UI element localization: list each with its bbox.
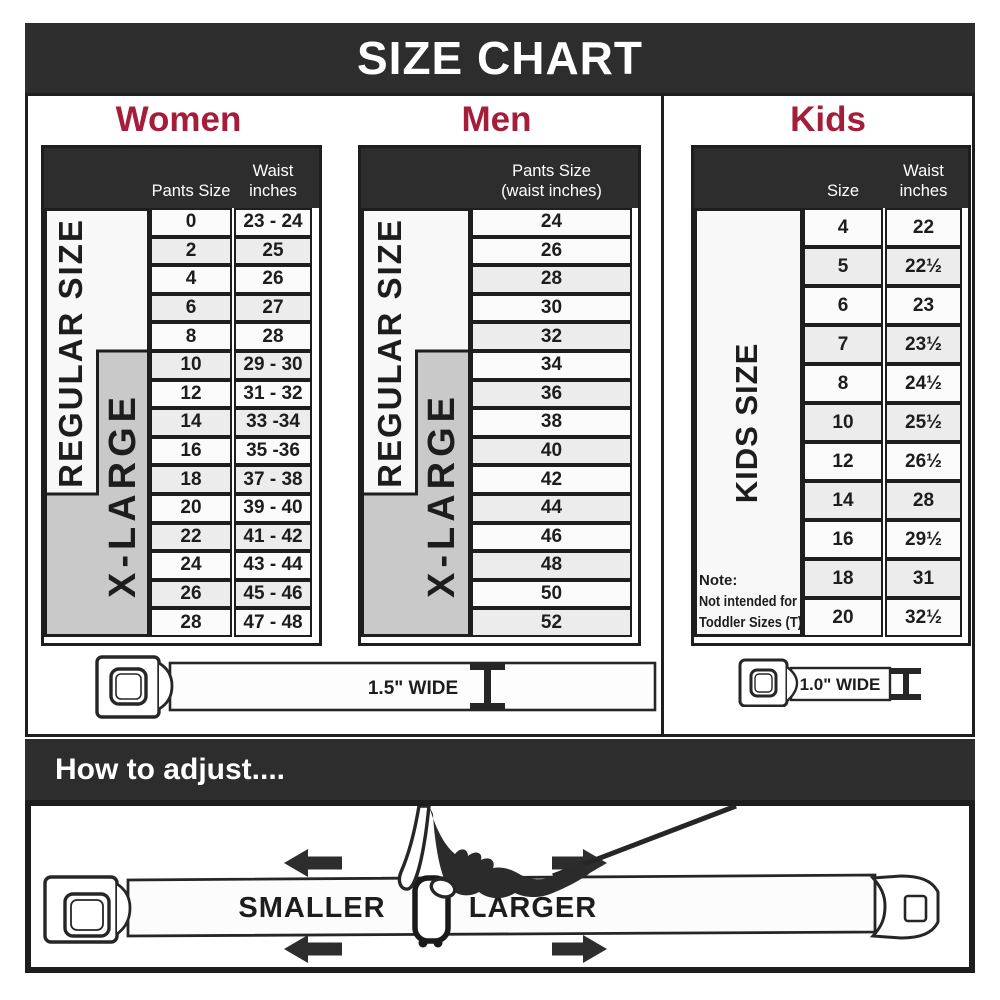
arrow-right-icon [552, 935, 607, 963]
waist-inches-cell: 25 [234, 237, 312, 266]
women-section-title: Women [41, 100, 316, 140]
size-tables-frame: Women Men Kids Pants Size Waist inches R… [25, 93, 975, 737]
waist-inches-cell: 35 -36 [234, 437, 312, 466]
pants-size-cell: 26 [150, 580, 232, 609]
table-row: 22 41 - 42 [150, 523, 313, 552]
how-to-adjust-bar: How to adjust.... [25, 739, 975, 800]
table-row: 8 24½ [803, 364, 962, 403]
pants-size-cell: 12 [150, 380, 232, 409]
kids-size-label: KIDS SIZE [729, 343, 764, 504]
waist-inches-cell: 39 - 40 [234, 494, 312, 523]
men-section-title: Men [358, 100, 635, 140]
header-spacer [694, 148, 803, 208]
men-table-rows: 24 26 28 30 32 34 36 38 [471, 208, 632, 637]
pants-size-cell: 20 [150, 494, 232, 523]
kids-waist-header: Waist inches [885, 148, 962, 208]
table-row: 28 [471, 265, 632, 294]
table-row: 10 29 - 30 [150, 351, 313, 380]
table-row: 16 35 -36 [150, 437, 313, 466]
pants-size-cell: 28 [471, 265, 632, 294]
kids-size-table: Size Waist inches KIDS SIZE Note: Not in… [691, 145, 971, 646]
men-xlarge-label: X-LARGE [421, 392, 463, 598]
pants-size-cell: 40 [471, 437, 632, 466]
pants-size-cell: 0 [150, 208, 232, 237]
table-row: 6 23 [803, 286, 962, 325]
kids-belt-illustration: 1.0" WIDE [735, 655, 930, 707]
table-row: 48 [471, 551, 632, 580]
pants-size-cell: 24 [471, 208, 632, 237]
table-row: 46 [471, 523, 632, 552]
table-row: 18 37 - 38 [150, 465, 313, 494]
table-row: 20 32½ [803, 598, 962, 637]
slider-foot [434, 939, 443, 948]
waist-inches-cell: 29 - 30 [234, 351, 312, 380]
waist-inches-cell: 27 [234, 294, 312, 323]
pants-size-cell: 42 [471, 465, 632, 494]
women-size-table: Pants Size Waist inches REGULAR SIZE X-L… [41, 145, 322, 646]
men-size-band-graphic: REGULAR SIZE X-LARGE [361, 208, 471, 637]
men-size-table: Pants Size (waist inches) REGULAR SIZE X… [358, 145, 641, 646]
pants-size-cell: 34 [471, 351, 632, 380]
pants-size-cell: 46 [471, 523, 632, 552]
pants-size-cell: 22 [150, 523, 232, 552]
kids-note-line3: Toddler Sizes (T) [699, 614, 802, 631]
waist-inches-cell: 22½ [885, 247, 962, 286]
pants-size-cell: 4 [150, 265, 232, 294]
size-cell: 18 [803, 559, 883, 598]
size-chart-page: SIZE CHART Women Men Kids Pants Size Wai… [0, 0, 1000, 1000]
pants-size-cell: 36 [471, 380, 632, 409]
table-row: 7 23½ [803, 325, 962, 364]
table-row: 12 31 - 32 [150, 380, 313, 409]
table-row: 24 [471, 208, 632, 237]
kids-note-line2: Not intended for [699, 593, 797, 610]
pants-size-cell: 44 [471, 494, 632, 523]
pants-size-cell: 50 [471, 580, 632, 609]
men-table-header: Pants Size (waist inches) [361, 148, 638, 208]
pants-size-cell: 16 [150, 437, 232, 466]
women-pants-size-header: Pants Size [150, 148, 232, 208]
women-size-band-graphic: REGULAR SIZE X-LARGE [44, 208, 150, 637]
table-row: 40 [471, 437, 632, 466]
pants-size-cell: 6 [150, 294, 232, 323]
kids-size-band-graphic: KIDS SIZE Note: Not intended for Toddler… [694, 208, 803, 637]
arrow-left-icon [284, 935, 342, 963]
page-title: SIZE CHART [357, 31, 643, 85]
kids-size-header: Size [803, 148, 883, 208]
waist-inches-cell: 31 - 32 [234, 380, 312, 409]
table-row: 14 33 -34 [150, 408, 313, 437]
table-row: 32 [471, 322, 632, 351]
size-cell: 10 [803, 403, 883, 442]
table-row: 2 25 [150, 237, 313, 266]
women-table-rows: 0 23 - 24 2 25 4 26 6 27 8 28 [150, 208, 313, 637]
table-row: 36 [471, 380, 632, 409]
table-row: 52 [471, 608, 632, 637]
kids-table-header: Size Waist inches [694, 148, 968, 208]
table-row: 16 29½ [803, 520, 962, 559]
waist-inches-cell: 24½ [885, 364, 962, 403]
pants-size-cell: 18 [150, 465, 232, 494]
title-banner: SIZE CHART [25, 23, 975, 93]
table-row: 38 [471, 408, 632, 437]
waist-inches-cell: 41 - 42 [234, 523, 312, 552]
pants-size-cell: 26 [471, 237, 632, 266]
waist-inches-cell: 26 [234, 265, 312, 294]
women-waist-header: Waist inches [234, 148, 312, 208]
waist-inches-cell: 47 - 48 [234, 608, 312, 637]
pants-size-cell: 14 [150, 408, 232, 437]
waist-inches-cell: 23 - 24 [234, 208, 312, 237]
table-row: 42 [471, 465, 632, 494]
pants-size-cell: 28 [150, 608, 232, 637]
pants-size-cell: 48 [471, 551, 632, 580]
size-cell: 7 [803, 325, 883, 364]
size-cell: 4 [803, 208, 883, 247]
table-row: 4 22 [803, 208, 962, 247]
pants-size-cell: 10 [150, 351, 232, 380]
smaller-label: SMALLER [238, 892, 385, 924]
pants-size-cell: 24 [150, 551, 232, 580]
women-regular-size-label: REGULAR SIZE [52, 218, 89, 488]
kids-note-line1: Note: [699, 572, 737, 589]
arrow-left-icon [284, 849, 342, 877]
women-table-header: Pants Size Waist inches [44, 148, 319, 208]
table-row: 5 22½ [803, 247, 962, 286]
width-marker-icon [891, 668, 921, 700]
table-row: 34 [471, 351, 632, 380]
kids-belt-width-label: 1.0" WIDE [800, 675, 881, 694]
waist-inches-cell: 33 -34 [234, 408, 312, 437]
table-row: 26 [471, 237, 632, 266]
table-row: 8 28 [150, 322, 313, 351]
size-cell: 14 [803, 481, 883, 520]
adjust-illustration: SMALLER LARGER [31, 806, 969, 967]
waist-inches-cell: 23½ [885, 325, 962, 364]
women-xlarge-label: X-LARGE [102, 392, 144, 598]
men-pants-size-header: Pants Size (waist inches) [471, 148, 632, 208]
pants-size-cell: 32 [471, 322, 632, 351]
size-cell: 16 [803, 520, 883, 559]
kids-section-divider [661, 93, 664, 737]
table-row: 28 47 - 48 [150, 608, 313, 637]
table-row: 18 31 [803, 559, 962, 598]
waist-inches-cell: 31 [885, 559, 962, 598]
table-row: 12 26½ [803, 442, 962, 481]
waist-inches-cell: 32½ [885, 598, 962, 637]
table-row: 50 [471, 580, 632, 609]
pants-size-cell: 30 [471, 294, 632, 323]
table-row: 30 [471, 294, 632, 323]
waist-inches-cell: 29½ [885, 520, 962, 559]
header-spacer [44, 148, 150, 208]
table-row: 6 27 [150, 294, 313, 323]
size-cell: 12 [803, 442, 883, 481]
waist-inches-cell: 37 - 38 [234, 465, 312, 494]
waist-inches-cell: 28 [234, 322, 312, 351]
pants-size-cell: 2 [150, 237, 232, 266]
waist-inches-cell: 22 [885, 208, 962, 247]
pants-size-cell: 8 [150, 322, 232, 351]
how-to-adjust-title: How to adjust.... [25, 753, 285, 787]
size-cell: 6 [803, 286, 883, 325]
waist-inches-cell: 23 [885, 286, 962, 325]
men-regular-size-label: REGULAR SIZE [371, 218, 408, 488]
table-row: 26 45 - 46 [150, 580, 313, 609]
adjust-illustration-panel: SMALLER LARGER [25, 800, 975, 973]
size-cell: 20 [803, 598, 883, 637]
waist-inches-cell: 25½ [885, 403, 962, 442]
table-row: 0 23 - 24 [150, 208, 313, 237]
table-row: 14 28 [803, 481, 962, 520]
pants-size-cell: 38 [471, 408, 632, 437]
belt-tip-slot [905, 896, 926, 921]
adult-belt-width-label: 1.5" WIDE [368, 678, 458, 699]
adult-belt-illustration: 1.5" WIDE [80, 650, 660, 722]
pants-size-cell: 52 [471, 608, 632, 637]
table-row: 10 25½ [803, 403, 962, 442]
table-row: 24 43 - 44 [150, 551, 313, 580]
waist-inches-cell: 26½ [885, 442, 962, 481]
header-spacer [361, 148, 471, 208]
slider-foot [419, 939, 428, 948]
kids-section-title: Kids [691, 100, 965, 140]
waist-inches-cell: 43 - 44 [234, 551, 312, 580]
table-row: 44 [471, 494, 632, 523]
waist-inches-cell: 28 [885, 481, 962, 520]
waist-inches-cell: 45 - 46 [234, 580, 312, 609]
size-cell: 8 [803, 364, 883, 403]
kids-table-rows: 4 22 5 22½ 6 23 7 23½ 8 24½ [803, 208, 962, 637]
table-row: 20 39 - 40 [150, 494, 313, 523]
table-row: 4 26 [150, 265, 313, 294]
size-cell: 5 [803, 247, 883, 286]
